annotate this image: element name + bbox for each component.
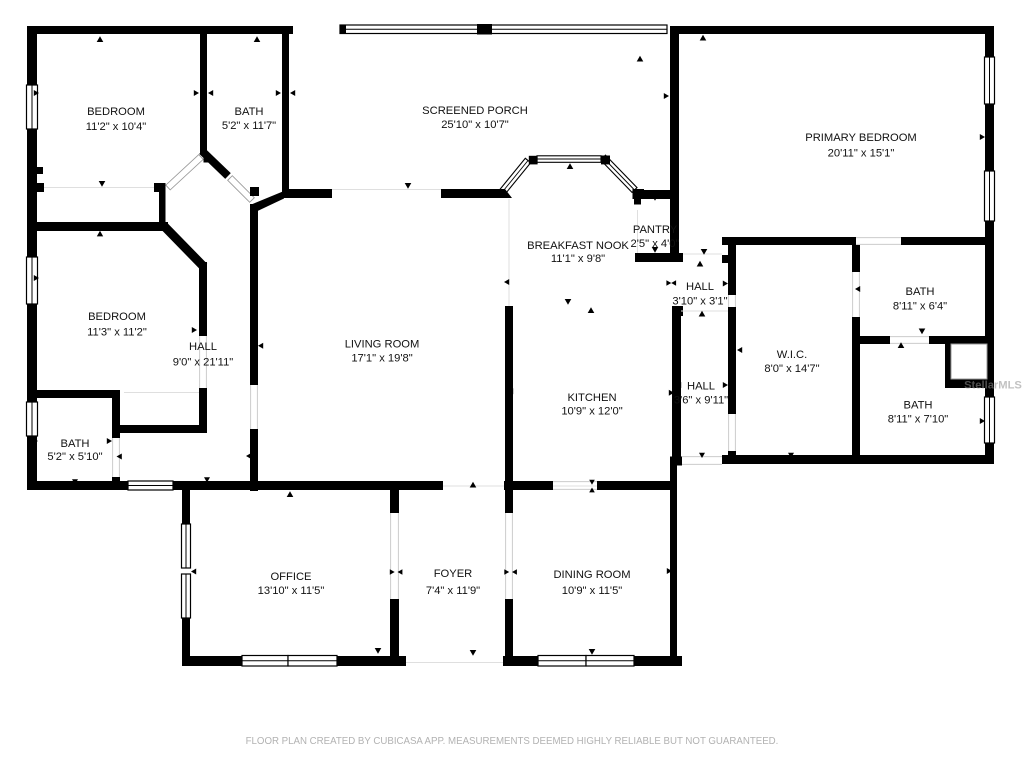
svg-text:BATH: BATH (60, 438, 89, 450)
svg-text:10'9" x 12'0": 10'9" x 12'0" (561, 405, 622, 417)
svg-text:10'9" x 11'5": 10'9" x 11'5" (562, 585, 623, 597)
svg-text:5'2" x 11'7": 5'2" x 11'7" (222, 120, 276, 132)
svg-text:W.I.C.: W.I.C. (777, 349, 807, 361)
svg-text:5'2" x 5'10": 5'2" x 5'10" (47, 451, 102, 463)
svg-text:KITCHEN: KITCHEN (567, 392, 616, 404)
svg-text:SCREENED PORCH: SCREENED PORCH (422, 105, 528, 117)
svg-text:HALL: HALL (687, 381, 715, 393)
svg-text:BEDROOM: BEDROOM (88, 311, 146, 323)
svg-text:8'0" x 14'7": 8'0" x 14'7" (764, 363, 819, 375)
svg-text:OFFICE: OFFICE (270, 571, 311, 583)
svg-text:BREAKFAST NOOK: BREAKFAST NOOK (527, 240, 629, 252)
svg-text:FOYER: FOYER (434, 568, 473, 580)
svg-text:HALL: HALL (189, 341, 217, 353)
svg-text:BATH: BATH (905, 286, 934, 298)
svg-text:9'0" x 21'11": 9'0" x 21'11" (173, 357, 234, 369)
svg-text:20'11" x 15'1": 20'11" x 15'1" (828, 148, 895, 160)
svg-text:FLOOR PLAN CREATED BY CUBICASA: FLOOR PLAN CREATED BY CUBICASA APP. MEAS… (246, 736, 779, 747)
svg-text:8'11" x 6'4": 8'11" x 6'4" (893, 301, 947, 313)
svg-text:3'10" x 3'1": 3'10" x 3'1" (672, 296, 727, 308)
svg-text:StellarMLS: StellarMLS (964, 380, 1022, 392)
svg-text:13'10" x 11'5": 13'10" x 11'5" (258, 585, 325, 597)
svg-text:3'6" x 9'11": 3'6" x 9'11" (674, 395, 728, 407)
svg-text:BEDROOM: BEDROOM (87, 106, 145, 118)
svg-text:11'3" x 11'2": 11'3" x 11'2" (87, 327, 147, 339)
svg-text:LIVING ROOM: LIVING ROOM (345, 339, 420, 351)
svg-text:11'1" x 9'8": 11'1" x 9'8" (551, 253, 605, 265)
svg-text:17'1" x 19'8": 17'1" x 19'8" (351, 353, 412, 365)
svg-text:HALL: HALL (686, 281, 714, 293)
svg-text:25'10" x 10'7": 25'10" x 10'7" (441, 119, 509, 131)
svg-text:11'2" x 10'4": 11'2" x 10'4" (86, 121, 147, 133)
svg-text:BATH: BATH (234, 106, 263, 118)
svg-text:7'4" x 11'9": 7'4" x 11'9" (426, 585, 480, 597)
svg-text:DINING ROOM: DINING ROOM (553, 569, 630, 581)
svg-text:8'11" x 7'10": 8'11" x 7'10" (888, 414, 949, 426)
svg-text:BATH: BATH (903, 400, 932, 412)
svg-text:PANTRY: PANTRY (633, 224, 678, 236)
svg-text:PRIMARY BEDROOM: PRIMARY BEDROOM (805, 132, 916, 144)
svg-text:2'5" x 4'0": 2'5" x 4'0" (631, 238, 680, 250)
